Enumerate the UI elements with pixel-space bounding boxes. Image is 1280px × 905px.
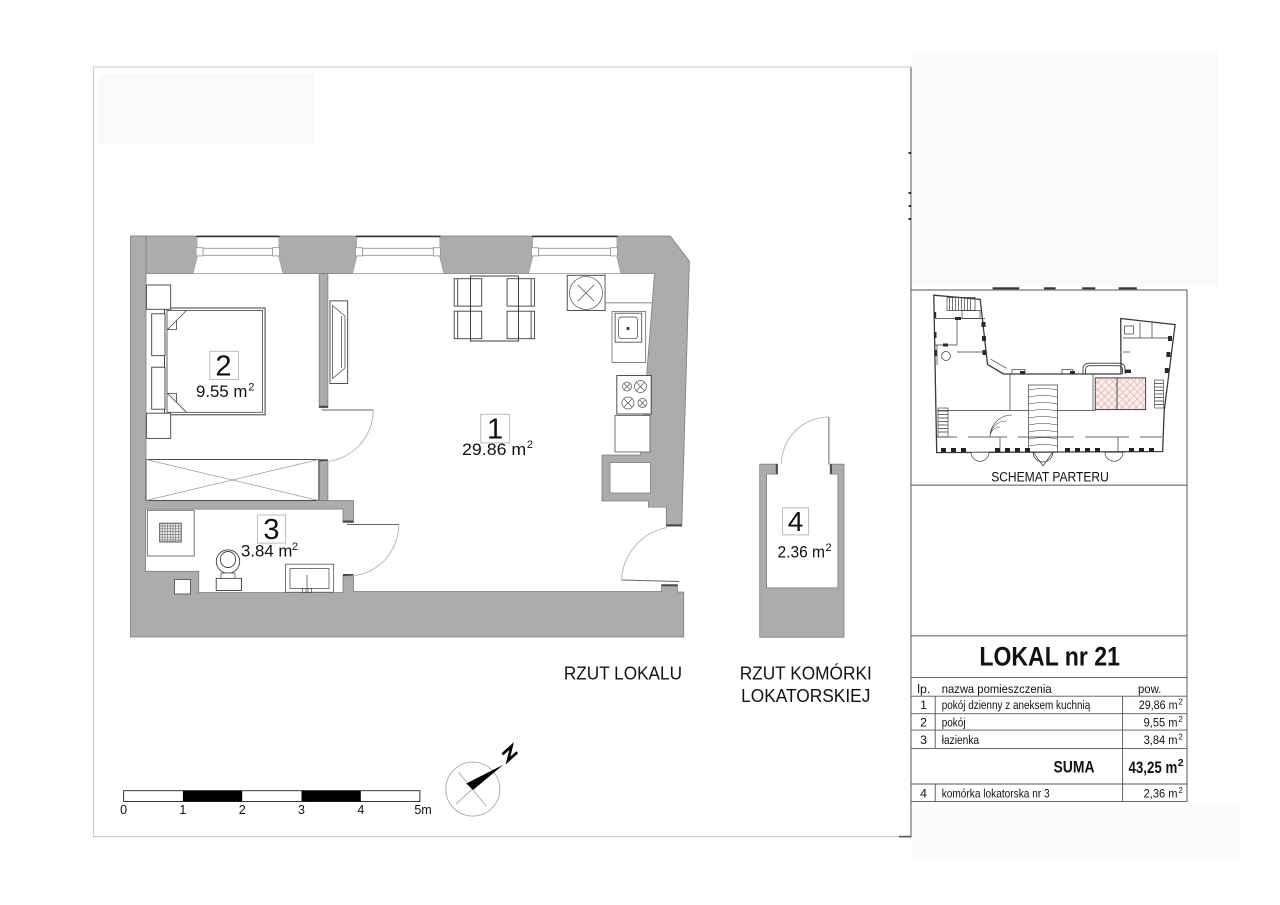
svg-text:1: 1 [179, 803, 186, 817]
svg-text:29.86 m: 29.86 m [462, 440, 526, 459]
svg-text:3.84 m: 3.84 m [241, 542, 292, 561]
svg-text:2: 2 [1178, 715, 1183, 724]
svg-text:2: 2 [826, 542, 832, 554]
svg-text:3,84 m: 3,84 m [1144, 733, 1178, 747]
svg-text:2: 2 [248, 382, 254, 394]
svg-text:pokój dzienny z aneksem kuchni: pokój dzienny z aneksem kuchnią [942, 698, 1091, 712]
svg-text:lp.: lp. [917, 682, 930, 696]
svg-text:SCHEMAT PARTERU: SCHEMAT PARTERU [991, 469, 1109, 485]
svg-text:LOKATORSKIEJ: LOKATORSKIEJ [741, 685, 870, 706]
svg-text:5m: 5m [414, 803, 431, 817]
svg-text:SUMA: SUMA [1054, 757, 1095, 776]
svg-text:pokój: pokój [942, 715, 966, 729]
svg-text:2,36 m: 2,36 m [1144, 786, 1178, 800]
svg-text:2: 2 [1178, 697, 1183, 706]
svg-text:9,55 m: 9,55 m [1144, 715, 1178, 729]
svg-text:pow.: pow. [1138, 682, 1161, 696]
svg-text:2: 2 [1178, 757, 1184, 769]
svg-text:43,25 m: 43,25 m [1129, 759, 1178, 777]
svg-text:2: 2 [239, 803, 246, 817]
svg-text:9.55 m: 9.55 m [196, 382, 247, 401]
svg-text:komórka lokatorska nr 3: komórka lokatorska nr 3 [942, 786, 1050, 800]
svg-text:1: 1 [920, 698, 927, 712]
svg-text:3: 3 [920, 733, 927, 747]
svg-text:4: 4 [357, 803, 364, 817]
svg-text:3: 3 [298, 803, 305, 817]
svg-text:łazienka: łazienka [942, 733, 980, 747]
svg-text:0: 0 [120, 803, 127, 817]
svg-text:RZUT LOKALU: RZUT LOKALU [564, 663, 682, 684]
svg-text:2: 2 [920, 715, 927, 729]
svg-text:29,86 m: 29,86 m [1139, 698, 1178, 712]
svg-text:2: 2 [527, 439, 533, 451]
svg-text:nazwa pomieszczenia: nazwa pomieszczenia [942, 682, 1052, 696]
svg-text:4: 4 [920, 786, 927, 800]
svg-text:2.36 m: 2.36 m [778, 543, 826, 562]
svg-text:2: 2 [1178, 732, 1183, 741]
svg-text:2: 2 [215, 351, 231, 383]
svg-text:4: 4 [788, 506, 804, 537]
svg-text:2: 2 [292, 541, 298, 553]
svg-text:2: 2 [1178, 786, 1183, 795]
svg-text:RZUT KOMÓRKI: RZUT KOMÓRKI [740, 663, 872, 684]
svg-text:LOKAL nr 21: LOKAL nr 21 [979, 642, 1120, 672]
